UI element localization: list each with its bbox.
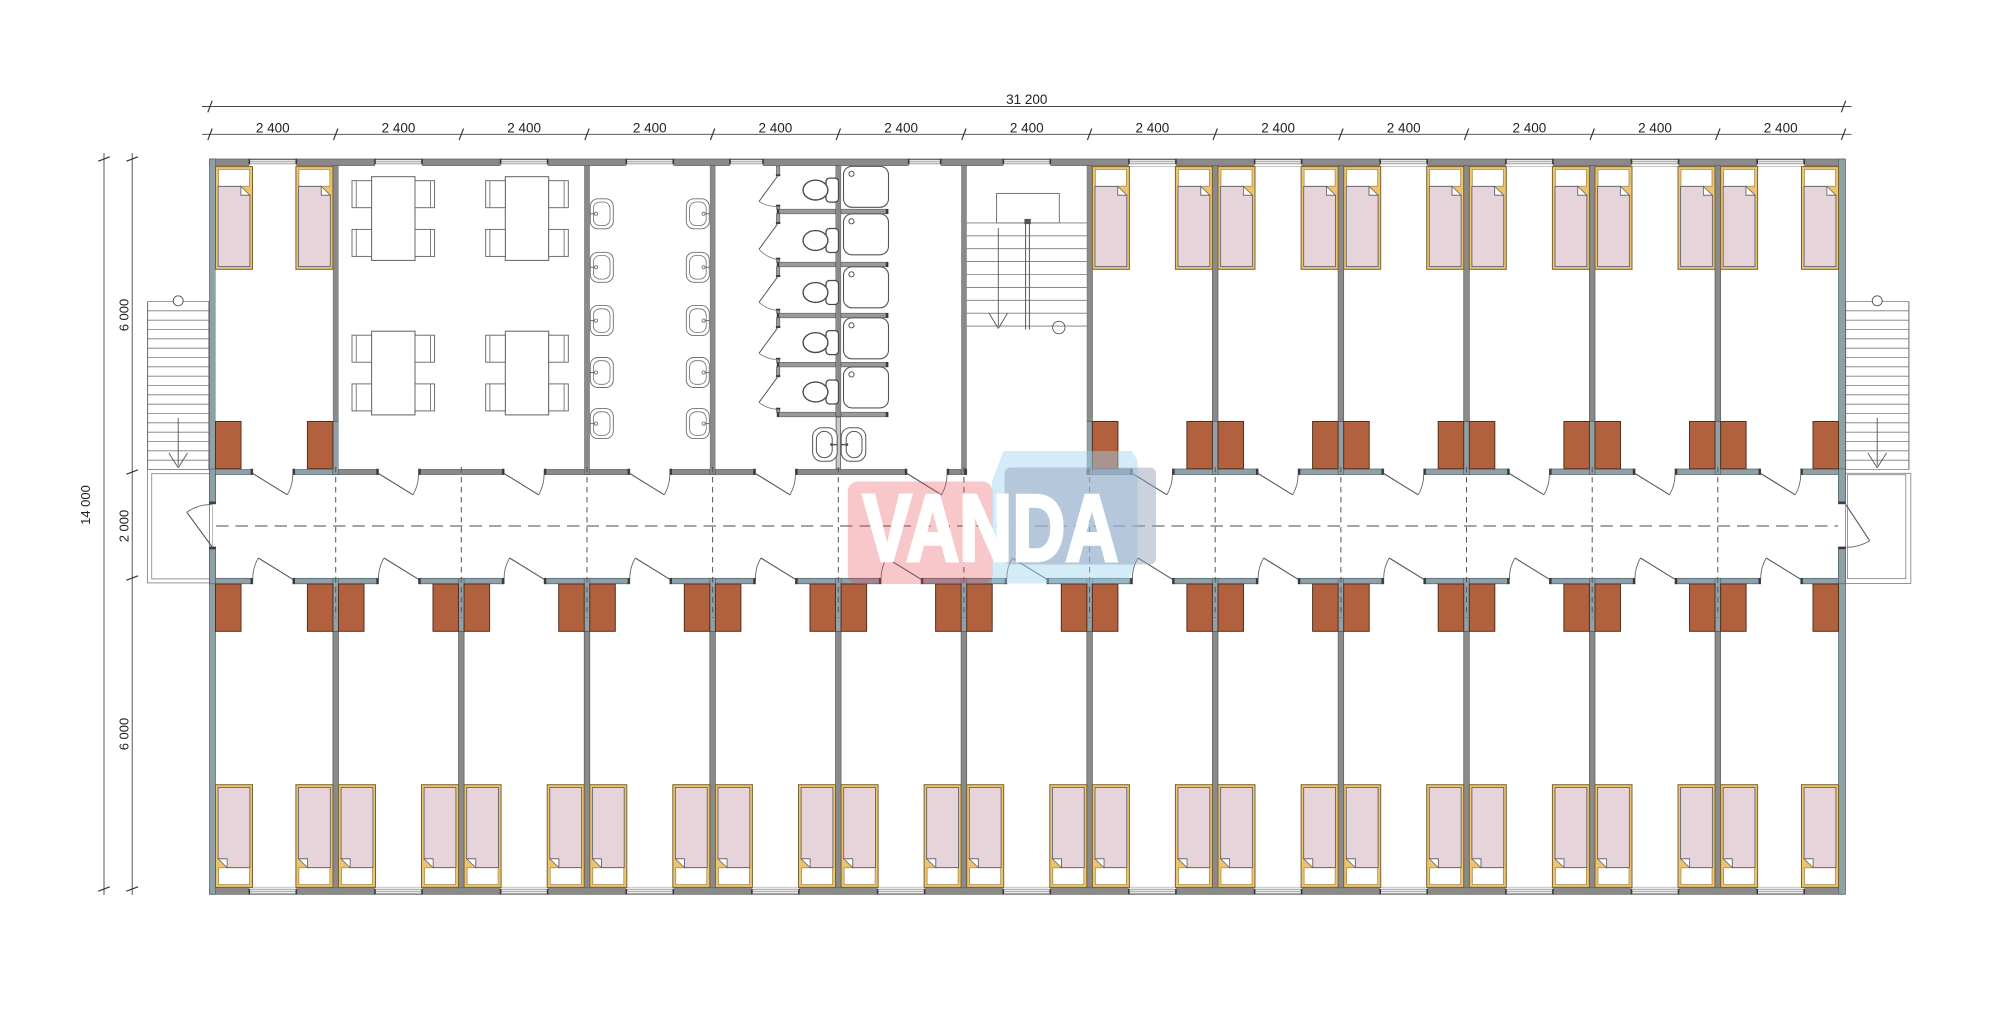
svg-text:2 400: 2 400: [382, 120, 416, 135]
svg-text:VANDA: VANDA: [863, 476, 1119, 582]
svg-text:2 400: 2 400: [1513, 120, 1547, 135]
svg-text:2 400: 2 400: [256, 120, 290, 135]
svg-text:31 200: 31 200: [1006, 92, 1047, 107]
svg-text:6 000: 6 000: [117, 299, 132, 332]
svg-text:2 400: 2 400: [884, 120, 918, 135]
svg-text:2 000: 2 000: [117, 510, 132, 543]
svg-text:14 000: 14 000: [78, 485, 93, 525]
svg-text:2 400: 2 400: [759, 120, 793, 135]
svg-text:2 400: 2 400: [1010, 120, 1044, 135]
svg-text:2 400: 2 400: [1136, 120, 1170, 135]
svg-text:6 000: 6 000: [117, 718, 132, 751]
svg-text:2 400: 2 400: [1638, 120, 1672, 135]
svg-text:2 400: 2 400: [1764, 120, 1798, 135]
svg-text:2 400: 2 400: [507, 120, 541, 135]
svg-text:2 400: 2 400: [1387, 120, 1421, 135]
svg-text:2 400: 2 400: [1261, 120, 1295, 135]
svg-text:2 400: 2 400: [633, 120, 667, 135]
